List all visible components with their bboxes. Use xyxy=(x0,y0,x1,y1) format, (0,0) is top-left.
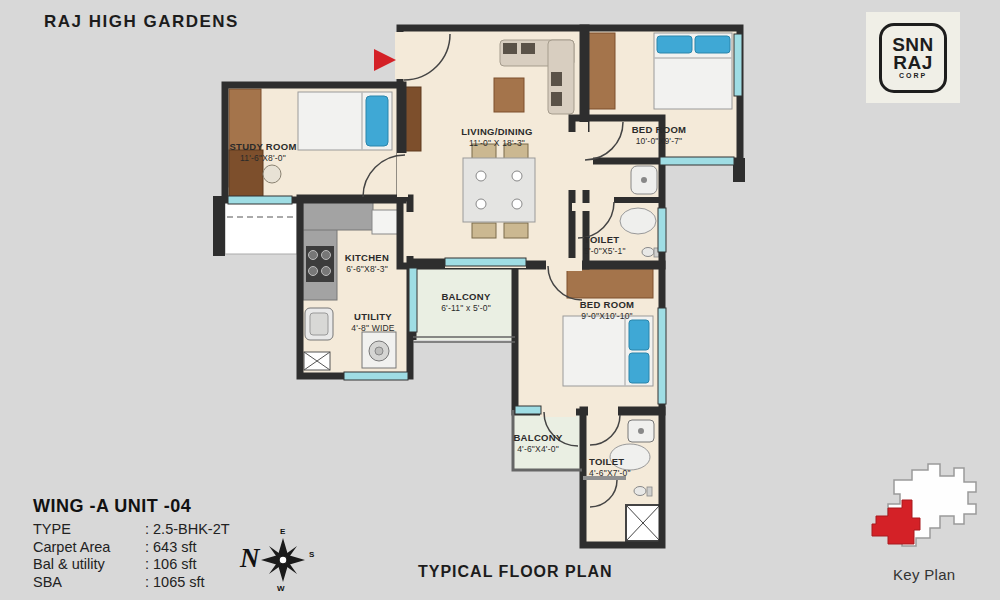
room-label-kitchen: KITCHEN 6'-6"X8'-3" xyxy=(327,252,407,275)
snn-raj-logo: SNN RAJ CORP xyxy=(866,12,960,103)
info-row-carpet-area: Carpet Area: 643 sft xyxy=(33,539,230,557)
plan-title: TYPICAL FLOOR PLAN xyxy=(418,563,613,581)
room-label-living-dining: LIVING/DINING 11'-0" X 18'-3" xyxy=(437,126,557,149)
bedroom1-furniture xyxy=(587,33,732,109)
room-label-toilet1: TOILET 5'-0"X5'-1" xyxy=(584,234,654,257)
compass-east-label: E xyxy=(280,527,285,536)
bedroom2-furniture xyxy=(563,268,653,386)
room-label-bedroom1: BED ROOM 10'-0"X9'-7" xyxy=(599,124,719,147)
logo-text-snn: SNN xyxy=(892,36,934,53)
room-label-utility: UTILITY 4'-8" WIDE xyxy=(333,311,413,334)
compass-north-label: N xyxy=(240,543,260,574)
room-label-toilet2: TOILET 4'-6"X7'-0" xyxy=(589,456,659,479)
room-label-balcony1: BALCONY 6'-11" x 5'-0" xyxy=(406,291,526,314)
entrance-arrow-icon xyxy=(374,49,396,71)
floor-plan-page: RAJ HIGH GARDENS SNN RAJ CORP STUDY ROOM… xyxy=(0,0,1000,600)
compass-south-label: S xyxy=(309,550,314,559)
key-plan-map xyxy=(872,464,976,546)
room-label-study: STUDY ROOM 11'-6"X8'-0" xyxy=(203,141,323,164)
compass-west-label: W xyxy=(277,584,285,593)
unit-info-block: WING -A UNIT -04 TYPE: 2.5-BHK-2T Carpet… xyxy=(33,496,230,591)
info-row-sba: SBA: 1065 sft xyxy=(33,574,230,592)
compass-rose-icon xyxy=(261,538,305,582)
logo-text-raj: RAJ xyxy=(893,54,933,71)
page-title: RAJ HIGH GARDENS xyxy=(44,12,239,32)
room-label-balcony2: BALCONY 4'-6"X4'-0" xyxy=(488,432,588,455)
info-row-type: TYPE: 2.5-BHK-2T xyxy=(33,521,230,539)
wing-unit-title: WING -A UNIT -04 xyxy=(33,496,230,517)
logo-text-corp: CORP xyxy=(899,72,927,79)
info-row-bal-utility: Bal & utility: 106 sft xyxy=(33,556,230,574)
logo-border: SNN RAJ CORP xyxy=(879,23,947,93)
key-plan-label: Key Plan xyxy=(893,566,955,583)
room-label-bedroom2: BED ROOM 9'-0"X10'-10" xyxy=(547,299,667,322)
